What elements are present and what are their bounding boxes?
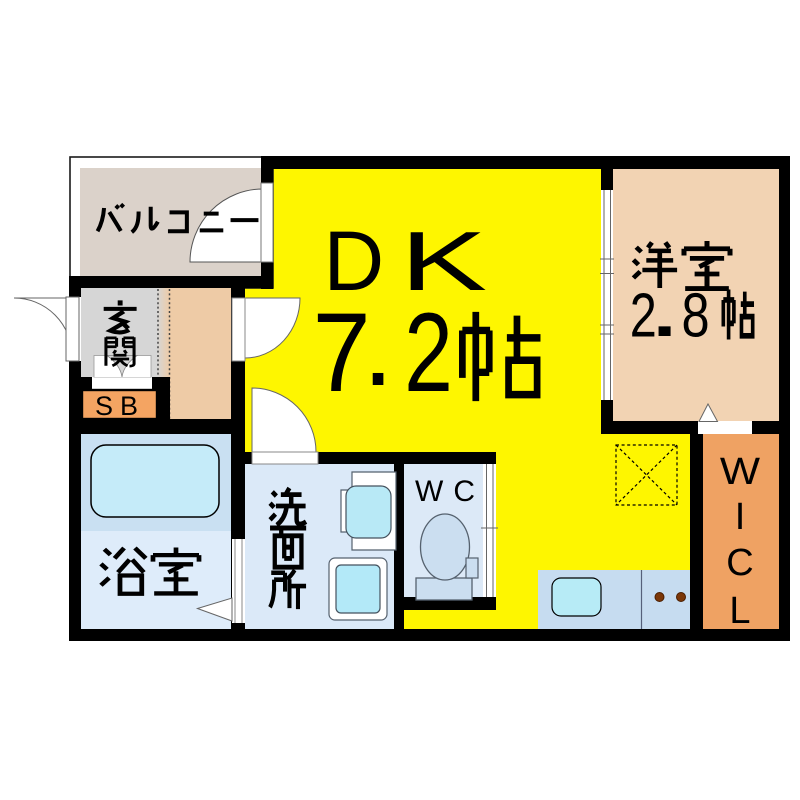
svg-text:2: 2 xyxy=(404,291,453,416)
svg-text:C: C xyxy=(726,542,753,584)
svg-text:L: L xyxy=(729,590,750,632)
svg-text:W: W xyxy=(720,449,760,492)
svg-text:SB: SB xyxy=(95,391,145,421)
svg-text:.: . xyxy=(363,284,394,409)
svg-text:WC: WC xyxy=(415,475,485,508)
svg-text:I: I xyxy=(735,496,746,538)
